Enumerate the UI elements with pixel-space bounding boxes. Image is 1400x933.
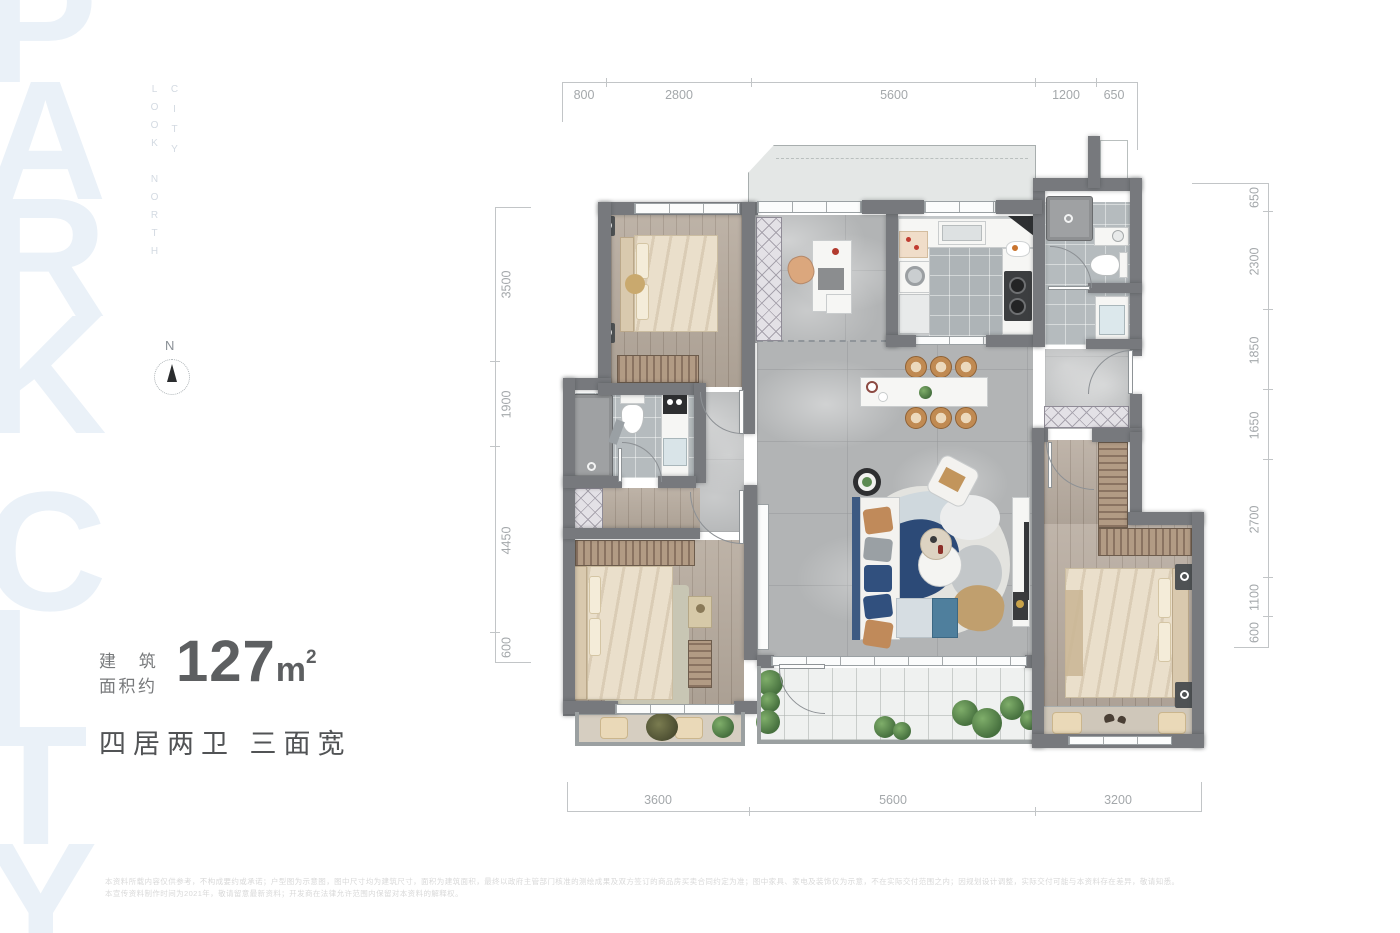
kitchen-lower-cabinet (899, 294, 930, 334)
wall (1088, 283, 1142, 293)
shower-head (587, 462, 596, 471)
dim-tick (1096, 78, 1097, 87)
bay-frame (575, 712, 579, 746)
living-cabinet (757, 504, 769, 650)
bay-cushion (600, 717, 628, 739)
area-unit: m (276, 651, 306, 689)
dim-label: 1850 (1248, 316, 1263, 386)
master-bath-door (618, 448, 622, 482)
bedroom2-wardrobe (617, 355, 699, 383)
north-balcony (748, 145, 1036, 203)
wall (1130, 432, 1142, 524)
wall (563, 378, 575, 716)
plant (862, 477, 872, 487)
bedroom3-wardrobe-north (1098, 442, 1128, 528)
dim-label: 2800 (649, 88, 709, 103)
wall (1130, 394, 1142, 432)
food-item (906, 237, 911, 242)
dim-tick (1035, 78, 1036, 87)
master-wardrobe (575, 540, 695, 566)
plant (760, 692, 780, 712)
plate (878, 392, 888, 402)
dim-tick (1263, 389, 1273, 390)
master-bed-headboard (573, 566, 587, 700)
corner-label-look-north: LOOK NORTH (149, 84, 160, 264)
fruit-plate (1006, 241, 1030, 257)
wall (1192, 512, 1204, 748)
plant (712, 716, 734, 738)
window (924, 201, 996, 213)
dim-tick (1035, 807, 1036, 816)
plate (866, 381, 878, 393)
bed3-throw (1065, 590, 1083, 676)
corner-label-city: CITY (169, 84, 180, 164)
wall (744, 485, 757, 660)
kitchen-floor (929, 248, 1003, 336)
sofa-cushion (863, 537, 893, 563)
pillow (589, 618, 601, 656)
floorplan-page: PARK CITY CITY LOOK NORTH N 建 筑 面积约 127m… (0, 0, 1400, 933)
plant (893, 722, 911, 740)
wall (1130, 178, 1142, 356)
toilet (1090, 254, 1120, 276)
food-item (1012, 245, 1018, 251)
bay-frame (741, 712, 745, 746)
study-wardrobe (756, 217, 782, 341)
wall (598, 383, 702, 395)
knob (676, 399, 682, 405)
wall (862, 200, 924, 214)
decor (1016, 600, 1024, 608)
food-item (914, 245, 919, 250)
compass: N (150, 338, 194, 400)
sink-basin (1099, 305, 1125, 335)
bay-cushion (1052, 712, 1082, 734)
desk-mug (832, 248, 839, 255)
bay-table (646, 713, 678, 741)
bay-cushion (675, 717, 703, 739)
wall (1088, 136, 1100, 188)
lamp (696, 604, 705, 613)
dim-ext (495, 207, 531, 208)
area-superscript: 2 (306, 647, 317, 668)
toilet-tank (1119, 252, 1128, 278)
tv (1024, 522, 1029, 600)
dim-ext (567, 782, 568, 812)
dim-tick (490, 632, 500, 633)
dim-label: 5600 (863, 793, 923, 808)
terrace-wall (757, 740, 1042, 744)
window (634, 203, 740, 214)
dining-chair (930, 407, 952, 429)
dining-chair (905, 407, 927, 429)
dim-tick (1263, 616, 1273, 617)
dim-ext (1201, 782, 1202, 812)
wall (563, 476, 622, 488)
dim-label: 1900 (500, 370, 515, 440)
dim-label: 3600 (628, 793, 688, 808)
dim-label: 600 (500, 613, 515, 683)
window (615, 704, 735, 714)
dim-label: 4450 (500, 506, 515, 576)
dim-tick (1263, 577, 1273, 578)
tagline: 四居两卫 三面宽 (99, 722, 352, 761)
plant (972, 708, 1002, 738)
burner (1009, 298, 1026, 315)
wall (658, 476, 696, 488)
kitchen-sliding-door (914, 336, 988, 345)
decor (930, 536, 937, 543)
decor (938, 545, 943, 554)
bay-frame (575, 742, 745, 746)
desk-pad (818, 268, 844, 290)
dining-chair (930, 356, 952, 378)
shower-drain (1064, 214, 1073, 223)
sink-basin (663, 438, 687, 466)
coffee-table-small (920, 528, 952, 560)
ottoman-teal (932, 598, 958, 638)
sofa-cushion (864, 565, 892, 592)
dim-tick (749, 807, 750, 816)
window (1068, 736, 1172, 745)
area-label-line1: 建 筑 (99, 647, 165, 672)
pillow (1158, 622, 1171, 662)
wall (1086, 339, 1142, 349)
bay-cushion (1158, 712, 1186, 734)
dim-tick (490, 361, 500, 362)
bedroom3-wardrobe-east (1098, 528, 1192, 556)
watermark-park: PARK (0, 0, 134, 434)
wall (563, 528, 700, 539)
burner (1009, 277, 1026, 294)
dim-label: 5600 (864, 88, 924, 103)
desk-cabinet (826, 294, 852, 314)
dim-label: 3500 (500, 250, 515, 320)
dining-chair (955, 407, 977, 429)
sofa-cushion (863, 593, 894, 619)
wash-basin (1112, 230, 1124, 242)
sofa-cushion (862, 506, 893, 535)
dim-tick (1263, 309, 1273, 310)
wall (598, 202, 611, 394)
kitchen-sink-basin (942, 225, 982, 241)
wall (1032, 428, 1044, 748)
dim-tick (751, 78, 752, 87)
wall (886, 214, 898, 347)
dim-label: 1650 (1248, 391, 1263, 461)
dim-tick (1263, 459, 1273, 460)
wall (996, 200, 1042, 214)
dining-chair (955, 356, 977, 378)
master-bench (688, 640, 712, 688)
area-label-line2: 面积约 (99, 672, 158, 697)
dim-line-right (1268, 183, 1269, 648)
window (757, 201, 862, 213)
washer-door (905, 266, 925, 286)
wall (886, 335, 916, 347)
entry-shoe-closet (1044, 406, 1129, 428)
dim-label: 3200 (1088, 793, 1148, 808)
pillow (1158, 578, 1171, 618)
ottoman (896, 598, 936, 638)
dim-line-left (495, 207, 496, 663)
knob (667, 399, 673, 405)
disclaimer-line2: 本宣传资料制作时间为2021年，敬请留意最新资料；开发商在法律允许范围内保留对本… (105, 888, 1350, 899)
vanity-tray (663, 395, 687, 414)
dim-label: 800 (554, 88, 614, 103)
corridor-floor (602, 488, 700, 532)
watermark-city: CITY (0, 494, 134, 933)
wall (563, 701, 618, 714)
dim-line-bottom (567, 811, 1202, 812)
area-value: 127m2 (176, 628, 317, 695)
compass-north-label: N (165, 338, 174, 353)
dim-label: 650 (1087, 88, 1141, 103)
wall (734, 701, 757, 714)
terrace-wall (757, 666, 761, 744)
sofa-cushion (862, 619, 894, 649)
dim-label: 2300 (1248, 227, 1263, 297)
dim-tick (606, 78, 607, 87)
dim-tick (490, 446, 500, 447)
area-number: 127 (176, 629, 276, 694)
dining-chair (905, 356, 927, 378)
dim-tick (1263, 211, 1273, 212)
dim-line-top (562, 82, 1138, 83)
balcony-railing (776, 158, 1028, 159)
bedside-rug (625, 274, 645, 294)
dim-label: 650 (1248, 163, 1263, 233)
cutting-board (899, 231, 928, 258)
compass-needle-icon (167, 364, 177, 382)
pillow (589, 576, 601, 614)
disclaimer-line1: 本资料所载内容仅供参考，不构成要约或承诺；户型图为示意图，图中尺寸均为建筑尺寸，… (105, 876, 1350, 887)
dim-label: 600 (1248, 598, 1263, 668)
dim-label: 2700 (1248, 485, 1263, 555)
table-plant (919, 386, 932, 399)
